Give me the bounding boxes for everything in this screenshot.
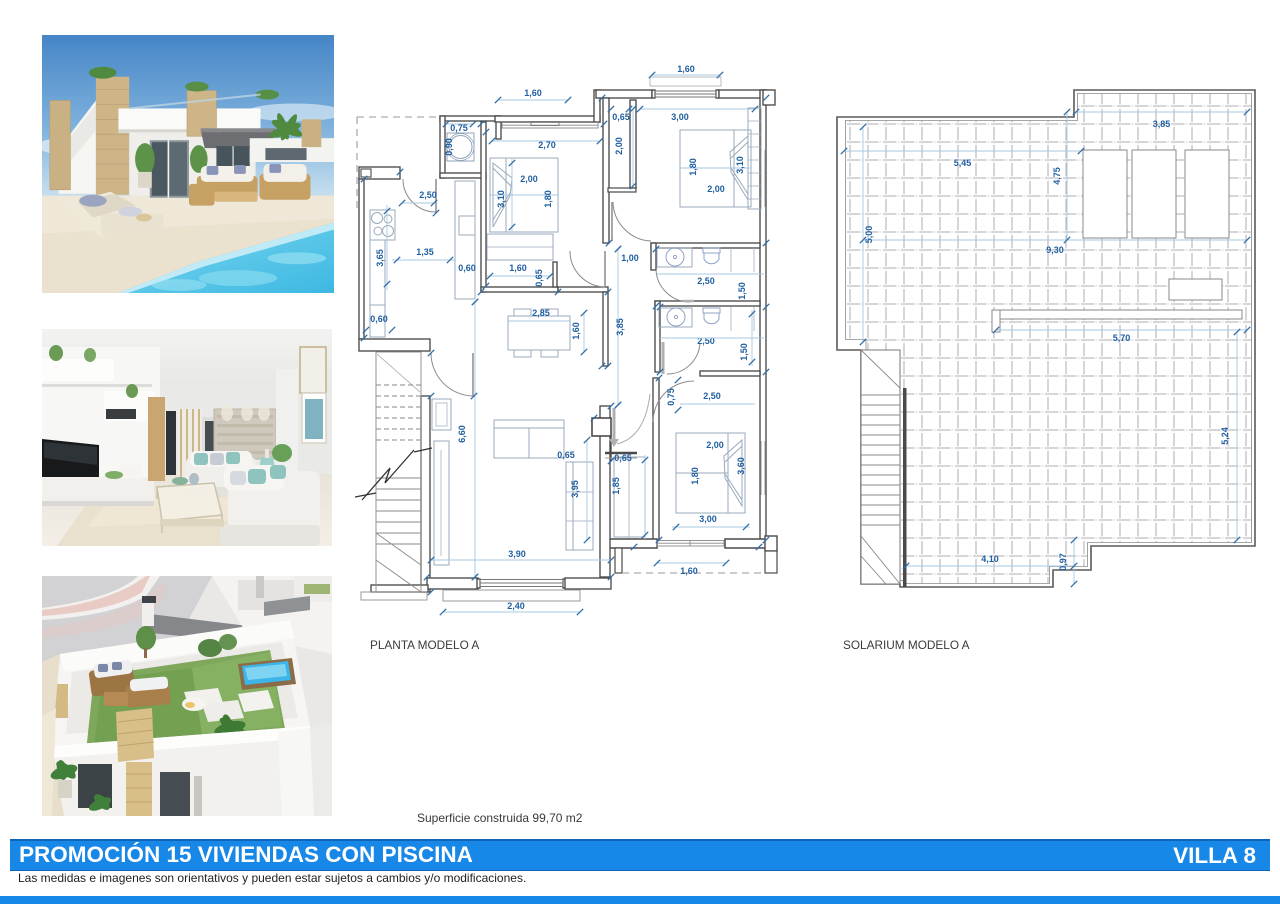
svg-text:2,00: 2,00 [707, 184, 725, 194]
svg-text:3,85: 3,85 [615, 318, 625, 336]
svg-text:1,60: 1,60 [680, 566, 698, 576]
svg-text:5,00: 5,00 [864, 226, 874, 244]
svg-text:2,00: 2,00 [520, 174, 538, 184]
svg-text:3,00: 3,00 [699, 514, 717, 524]
svg-text:1,00: 1,00 [621, 253, 639, 263]
svg-text:1,50: 1,50 [737, 282, 747, 300]
svg-text:3,65: 3,65 [375, 249, 385, 267]
svg-text:3,00: 3,00 [671, 112, 689, 122]
svg-text:0,60: 0,60 [458, 263, 476, 273]
svg-text:5,45: 5,45 [954, 158, 972, 168]
svg-text:0,65: 0,65 [612, 112, 630, 122]
svg-text:4,10: 4,10 [981, 554, 999, 564]
svg-text:1,80: 1,80 [690, 467, 700, 485]
svg-text:0,97: 0,97 [1058, 553, 1068, 571]
svg-text:0,60: 0,60 [370, 314, 388, 324]
svg-text:1,35: 1,35 [416, 247, 434, 257]
svg-text:1,85: 1,85 [611, 477, 621, 495]
svg-text:0,90: 0,90 [444, 138, 454, 156]
svg-text:1,50: 1,50 [739, 343, 749, 361]
svg-text:1,60: 1,60 [677, 64, 695, 74]
svg-text:SOLARIUM MODELO A: SOLARIUM MODELO A [843, 638, 970, 652]
svg-text:3,10: 3,10 [735, 156, 745, 174]
svg-text:1,60: 1,60 [571, 322, 581, 340]
svg-text:2,00: 2,00 [706, 440, 724, 450]
svg-text:3,95: 3,95 [570, 480, 580, 498]
svg-text:Superficie construida 99,70 m2: Superficie construida 99,70 m2 [417, 811, 583, 825]
svg-text:3,90: 3,90 [508, 549, 526, 559]
svg-text:3,60: 3,60 [736, 457, 746, 475]
svg-text:6,60: 6,60 [457, 425, 467, 443]
svg-text:2,40: 2,40 [507, 601, 525, 611]
svg-text:5,70: 5,70 [1113, 333, 1131, 343]
svg-text:2,50: 2,50 [697, 336, 715, 346]
svg-text:0,75: 0,75 [666, 388, 676, 406]
svg-text:2,50: 2,50 [703, 391, 721, 401]
svg-text:3,10: 3,10 [496, 190, 506, 208]
svg-text:9,30: 9,30 [1046, 245, 1064, 255]
svg-text:2,00: 2,00 [614, 137, 624, 155]
svg-text:2,50: 2,50 [697, 276, 715, 286]
svg-text:4,75: 4,75 [1052, 167, 1062, 185]
svg-text:1,60: 1,60 [509, 263, 527, 273]
svg-text:1,80: 1,80 [688, 158, 698, 176]
svg-text:3,85: 3,85 [1153, 119, 1171, 129]
svg-text:0,65: 0,65 [534, 269, 544, 287]
svg-text:0,75: 0,75 [450, 123, 468, 133]
svg-text:1,80: 1,80 [543, 190, 553, 208]
svg-text:2,50: 2,50 [419, 190, 437, 200]
svg-text:PLANTA MODELO A: PLANTA MODELO A [370, 638, 479, 652]
svg-text:5,24: 5,24 [1220, 427, 1230, 445]
svg-text:0,65: 0,65 [614, 453, 632, 463]
svg-text:2,85: 2,85 [532, 308, 550, 318]
svg-text:0,65: 0,65 [557, 450, 575, 460]
svg-text:1,60: 1,60 [524, 88, 542, 98]
svg-text:2,70: 2,70 [538, 140, 556, 150]
